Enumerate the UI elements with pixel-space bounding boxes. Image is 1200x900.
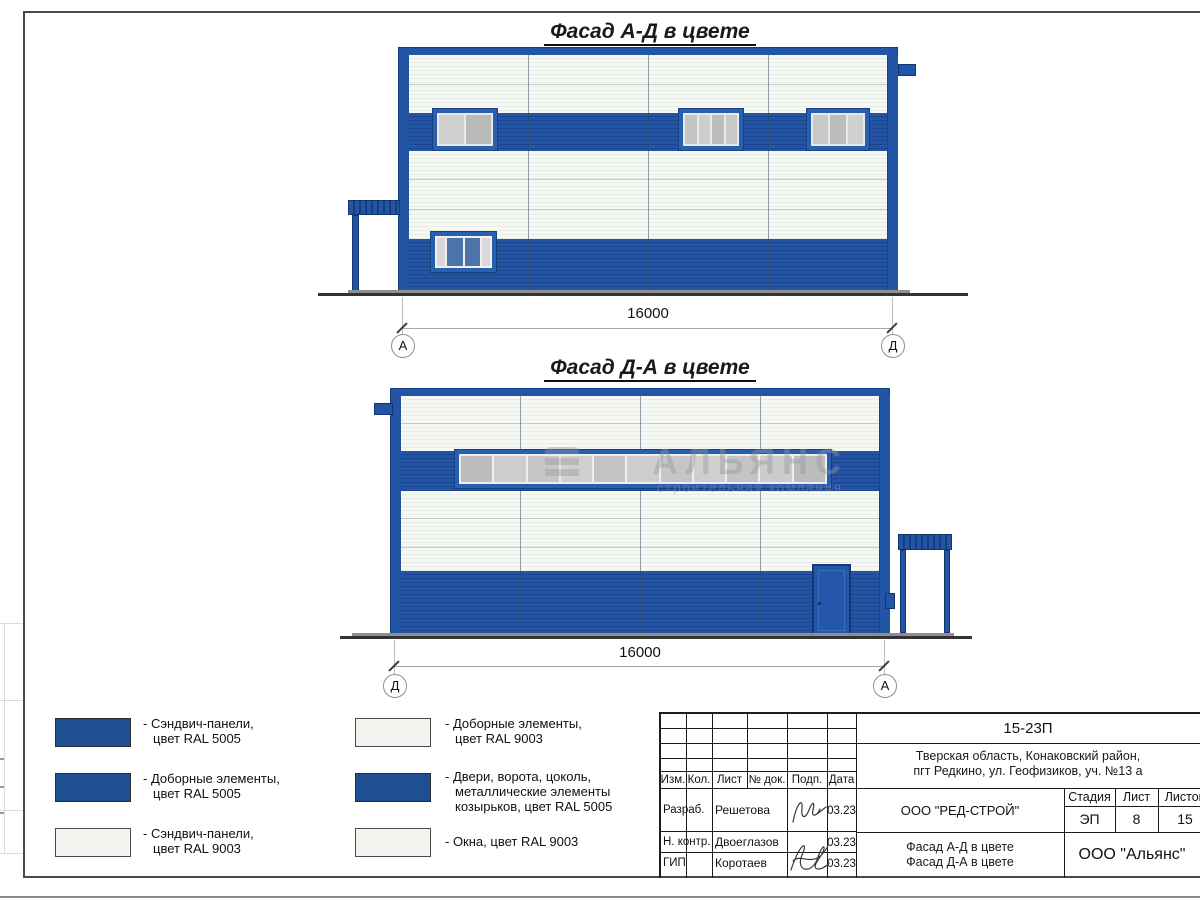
margin-stamp-line <box>0 623 23 624</box>
project-address-line: пгт Редкино, ул. Геофизиков, уч. №13 а <box>856 764 1200 779</box>
panel-joint <box>760 396 761 637</box>
color-swatch-ral9003 <box>55 828 131 857</box>
legend-item: - Сэндвич-панели, цвет RAL 5005 <box>143 716 254 746</box>
legend-item: - Сэндвич-панели, цвет RAL 9003 <box>143 826 254 856</box>
watermark-logo <box>545 447 579 479</box>
designer-company: ООО "РЕД-СТРОЙ" <box>856 788 1064 832</box>
extension-line <box>394 640 395 678</box>
legend-label: козырьков, цвет RAL 5005 <box>445 799 612 814</box>
legend-label: цвет RAL 5005 <box>143 731 254 746</box>
col-header-kol: Кол. <box>686 771 712 788</box>
canopy-post <box>352 215 359 293</box>
canopy-post <box>944 550 950 633</box>
panel-joint <box>528 55 529 294</box>
legend-label: - Окна, цвет RAL 9003 <box>445 834 578 849</box>
legend-item: - Двери, ворота, цоколь, металлические э… <box>445 769 612 814</box>
window <box>678 108 744 151</box>
axis-marker-d: Д <box>383 674 407 698</box>
door-panel <box>818 570 845 631</box>
row-role: ГИП <box>663 856 715 870</box>
panel-joint <box>520 396 521 637</box>
canopy-roof <box>348 200 400 215</box>
row-name: Решетова <box>715 803 787 817</box>
col-header-sign: Подп. <box>787 771 827 788</box>
col-header-izm: Изм. <box>660 771 686 788</box>
row-role: Разраб. <box>663 803 713 817</box>
margin-stamp-line <box>4 623 5 853</box>
ground-line <box>318 293 968 296</box>
door-handle <box>818 602 821 605</box>
legend-label: - Доборные элементы, <box>143 771 280 786</box>
row-name: Коротаев <box>715 856 787 870</box>
ground-line <box>340 636 972 639</box>
legend-label: цвет RAL 9003 <box>445 731 582 746</box>
stage-label: Стадия <box>1064 788 1115 806</box>
dimension-line <box>402 328 893 329</box>
dimension-line <box>394 666 885 667</box>
page-edge-line <box>0 896 1200 898</box>
door <box>812 564 851 637</box>
row-name: Двоеглазов <box>715 835 787 849</box>
panel-joint <box>768 55 769 294</box>
signature <box>789 792 829 830</box>
wall-fixture <box>885 593 895 609</box>
sheets-label: Листов <box>1158 788 1200 806</box>
corner-trim-right <box>887 55 898 294</box>
margin-stamp-line <box>0 700 23 701</box>
axis-marker-a: А <box>391 334 415 358</box>
titleblock-line <box>660 728 856 729</box>
col-header-doc: № док. <box>747 771 787 788</box>
color-swatch-ral5005 <box>355 773 431 802</box>
axis-marker-d: Д <box>881 334 905 358</box>
legend-label: - Двери, ворота, цоколь, <box>445 769 612 784</box>
stage-value: ЭП <box>1064 806 1115 832</box>
color-swatch-ral5005 <box>55 773 131 802</box>
titleblock-line <box>686 713 687 878</box>
margin-stamp-line <box>0 810 23 811</box>
col-header-date: Дата <box>827 771 856 788</box>
row-date: 03.23 <box>827 857 856 870</box>
project-address-line: Тверская область, Конаковский район, <box>856 749 1200 764</box>
titleblock-line <box>856 743 1200 744</box>
sheet-label: Лист <box>1115 788 1158 806</box>
ribbon-window <box>454 449 832 489</box>
legend-item: - Окна, цвет RAL 9003 <box>445 834 578 849</box>
legend-item: - Доборные элементы, цвет RAL 5005 <box>143 771 280 801</box>
sheet-number: 8 <box>1115 806 1158 832</box>
extension-line <box>884 640 885 678</box>
window <box>432 108 498 151</box>
margin-stamp-line <box>0 853 23 854</box>
sheet-frame-top <box>23 11 1200 13</box>
facade-ad-title: Фасад А-Д в цвете <box>400 20 900 44</box>
facade-da-title: Фасад Д-А в цвете <box>400 356 900 380</box>
row-date: 03.23 <box>827 804 856 817</box>
sheets-total: 15 <box>1158 806 1200 832</box>
sheet-frame-bottom <box>23 876 1200 878</box>
panel-joint <box>648 55 649 294</box>
dimension-label: 16000 <box>548 305 748 322</box>
color-swatch-ral5005 <box>55 718 131 747</box>
project-address: Тверская область, Конаковский район, пгт… <box>856 749 1200 778</box>
legend-label: цвет RAL 5005 <box>143 786 280 801</box>
row-date: 03.23 <box>827 836 856 849</box>
axis-marker-a: А <box>873 674 897 698</box>
margin-tick <box>0 758 4 760</box>
project-code: 15-23П <box>856 713 1200 743</box>
gutter-stub <box>374 403 393 415</box>
canopy-post <box>900 550 906 633</box>
legend-label: металлические элементы <box>445 784 612 799</box>
sheet-frame-left <box>23 11 25 878</box>
legend-label: - Сэндвич-панели, <box>143 826 254 841</box>
titleblock-line <box>660 743 856 744</box>
row-role: Н. контр. <box>663 835 715 849</box>
legend-label: - Сэндвич-панели, <box>143 716 254 731</box>
sheet-title-line: Фасад А-Д в цвете <box>856 840 1064 855</box>
titleblock-line <box>712 713 713 878</box>
legend-label: цвет RAL 9003 <box>143 841 254 856</box>
facade-ad-building <box>398 47 898 295</box>
legend-label: - Доборные элементы, <box>445 716 582 731</box>
col-header-list: Лист <box>712 771 747 788</box>
margin-tick <box>0 812 4 814</box>
color-swatch-ral9003 <box>355 828 431 857</box>
facade-da-building <box>390 388 890 638</box>
color-swatch-ral9003 <box>355 718 431 747</box>
legend-item: - Доборные элементы, цвет RAL 9003 <box>445 716 582 746</box>
panel-joint <box>640 396 641 637</box>
contractor-company: ООО "Альянс" <box>1064 832 1200 878</box>
dimension-label: 16000 <box>540 644 740 661</box>
gutter-stub <box>898 64 916 76</box>
window <box>806 108 870 151</box>
signature <box>785 828 831 878</box>
sheet-title: Фасад А-Д в цвете Фасад Д-А в цвете <box>856 840 1064 870</box>
titleblock-line <box>660 788 856 789</box>
sheet-title-line: Фасад Д-А в цвете <box>856 855 1064 870</box>
canopy-roof <box>898 534 952 550</box>
titleblock-line <box>660 758 856 759</box>
titleblock-border <box>659 712 661 878</box>
margin-tick <box>0 786 4 788</box>
window <box>430 231 497 273</box>
drawing-sheet: Фасад А-Д в цвете <box>0 0 1200 900</box>
